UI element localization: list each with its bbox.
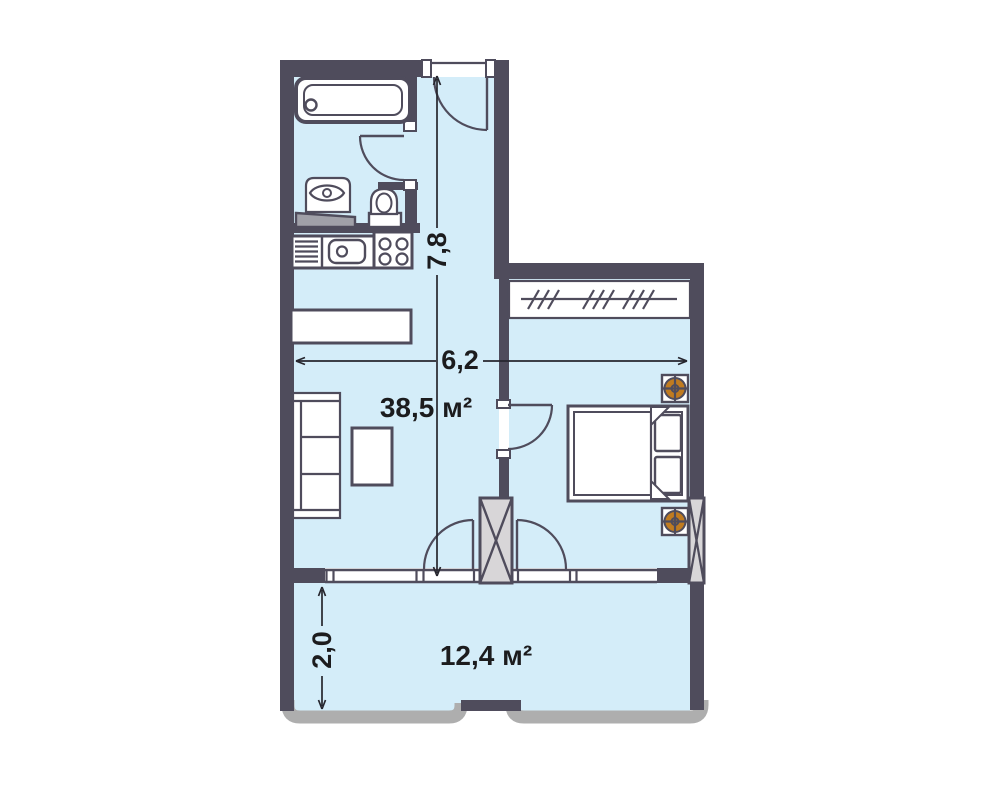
bathtub-icon bbox=[296, 78, 410, 122]
balcony-wall-stub bbox=[461, 700, 521, 711]
hall-right-wall bbox=[494, 60, 509, 279]
pillow-icon bbox=[655, 415, 681, 451]
hatched-column-center bbox=[480, 498, 512, 583]
bar-counter-icon bbox=[291, 310, 411, 343]
floor-plan-page: 7,8 6,2 2,0 38,5 м² 12,4 м² bbox=[0, 0, 997, 801]
kitchen-sink-icon bbox=[329, 240, 365, 263]
sofa-icon bbox=[293, 393, 340, 518]
ceiling-fixture-icon bbox=[662, 375, 688, 402]
floor-areas bbox=[294, 77, 690, 711]
coffee-table-icon bbox=[352, 428, 392, 485]
bedroom-west-wall-lower bbox=[499, 458, 509, 498]
bedroom-west-wall-upper bbox=[499, 279, 509, 400]
area-label-balcony: 12,4 м² bbox=[440, 640, 532, 671]
wardrobe-icon bbox=[509, 281, 690, 318]
ceiling-fixture-icon bbox=[662, 508, 688, 535]
double-bed-icon bbox=[568, 406, 688, 501]
floor-plan: 7,8 6,2 2,0 38,5 м² 12,4 м² bbox=[0, 0, 997, 801]
balcony-wall-right bbox=[657, 568, 690, 583]
hatched-column-right bbox=[689, 498, 704, 583]
right-wall bbox=[690, 263, 704, 710]
area-label-main-room: 38,5 м² bbox=[380, 392, 472, 423]
bathroom-right-wall-lower bbox=[405, 190, 417, 223]
dimension-label-height: 7,8 bbox=[422, 232, 452, 270]
washbasin-icon bbox=[306, 178, 350, 212]
toilet-icon bbox=[369, 189, 401, 227]
left-wall bbox=[280, 60, 294, 711]
dimension-label-balcony-depth: 2,0 bbox=[307, 631, 337, 669]
stove-icon bbox=[374, 232, 412, 268]
dimension-label-width: 6,2 bbox=[441, 345, 479, 375]
bedroom-top-wall bbox=[494, 263, 704, 279]
balcony-wall-left bbox=[280, 568, 325, 583]
kitchen-counter bbox=[292, 232, 412, 268]
